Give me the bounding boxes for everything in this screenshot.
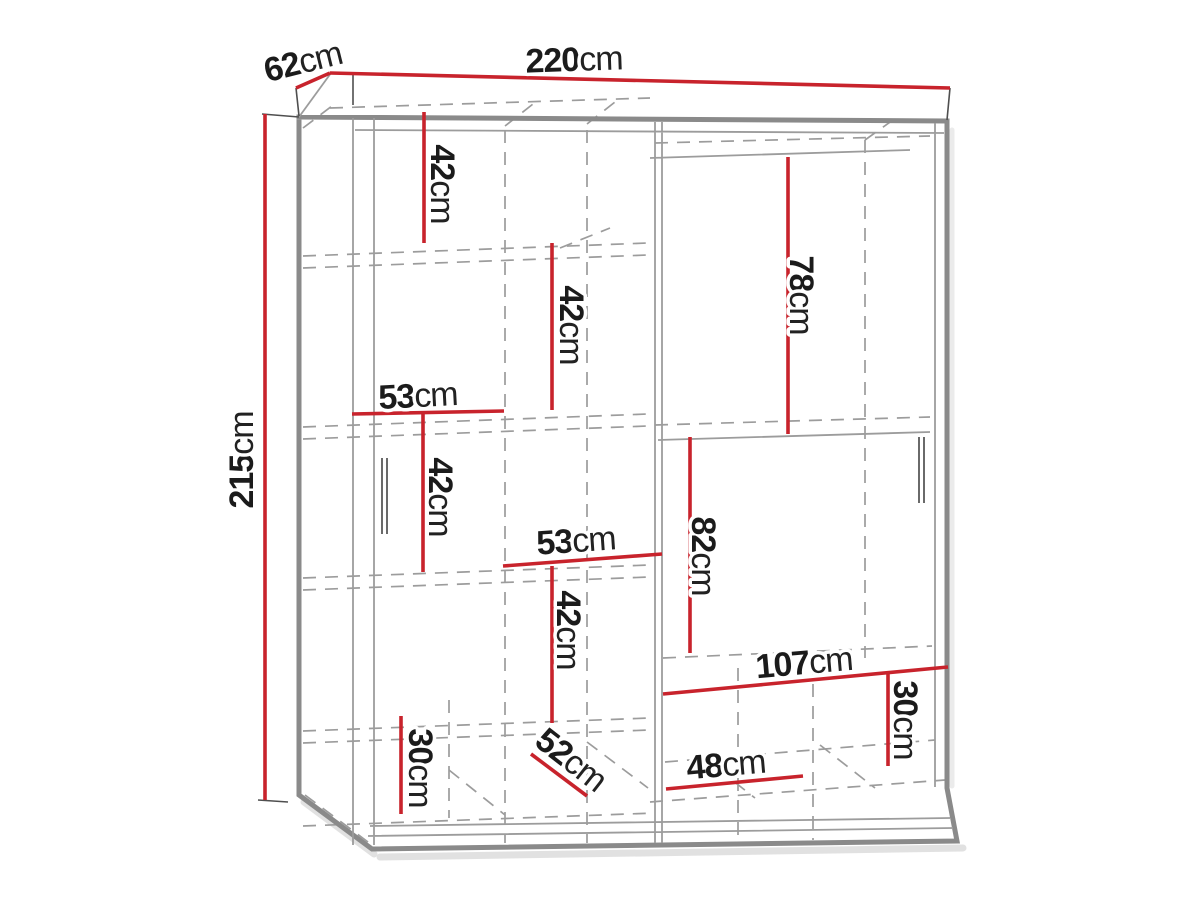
dimension-label-42-third: 42cm bbox=[421, 457, 459, 536]
extension-ticks bbox=[258, 72, 950, 802]
dimension-value: 53 bbox=[535, 522, 573, 562]
dimension-unit: cm bbox=[579, 39, 624, 78]
dimension-label-30-left: 30cm bbox=[401, 728, 439, 807]
dimension-label-107: 107cm bbox=[754, 640, 854, 686]
dimension-label-30-right: 30cm bbox=[886, 680, 924, 759]
dimension-label-53-lower: 53cm bbox=[535, 519, 617, 562]
dimension-unit: cm bbox=[413, 375, 458, 415]
dimension-value: 42 bbox=[421, 457, 459, 493]
dimension-value: 42 bbox=[549, 590, 587, 626]
dimension-value: 30 bbox=[401, 728, 439, 764]
dimension-value: 42 bbox=[552, 285, 590, 321]
dimension-unit: cm bbox=[421, 493, 459, 536]
dimension-value: 53 bbox=[377, 377, 415, 417]
dimension-unit: cm bbox=[721, 743, 767, 785]
dimension-label-height-215: 215cm bbox=[223, 411, 261, 508]
dimension-line-width-220 bbox=[330, 73, 950, 88]
dimension-label-width-220: 220cm bbox=[525, 39, 623, 80]
left-door-handle bbox=[382, 458, 387, 534]
dimension-unit: cm bbox=[886, 716, 924, 759]
dimension-label-53-upper: 53cm bbox=[377, 375, 458, 417]
dimension-unit: cm bbox=[552, 321, 590, 364]
dimension-value: 107 bbox=[754, 644, 811, 687]
dimension-label-78: 78cm bbox=[782, 255, 820, 334]
dimension-lines bbox=[265, 73, 950, 814]
dimension-label-42-top: 42cm bbox=[423, 144, 461, 223]
wardrobe-dimension-diagram: 220cm 62cm 215cm 42cm 42cm 53cm 42cm 53c… bbox=[0, 0, 1200, 900]
dimension-label-42-second: 42cm bbox=[552, 285, 590, 364]
dimension-ticks bbox=[258, 72, 950, 802]
dimension-unit: cm bbox=[549, 626, 587, 669]
right-door-handle bbox=[919, 437, 924, 503]
dimension-value: 82 bbox=[684, 516, 722, 552]
shadow-bottom-left bbox=[304, 802, 374, 854]
dimension-value: 48 bbox=[685, 746, 724, 787]
dimension-value: 220 bbox=[525, 41, 580, 81]
dimension-label-48: 48cm bbox=[685, 743, 767, 788]
dimension-unit: cm bbox=[423, 180, 461, 223]
dimension-unit: cm bbox=[684, 552, 722, 595]
dimension-unit: cm bbox=[808, 640, 854, 682]
dimension-value: 78 bbox=[782, 255, 820, 291]
diagram-canvas: 220cm 62cm 215cm 42cm 42cm 53cm 42cm 53c… bbox=[0, 0, 1200, 900]
dimension-value: 30 bbox=[886, 680, 924, 716]
dimension-value: 42 bbox=[423, 144, 461, 180]
dimension-unit: cm bbox=[401, 764, 439, 807]
dimension-label-82: 82cm bbox=[684, 516, 722, 595]
dashed-partition-lines bbox=[449, 130, 865, 845]
dimension-unit: cm bbox=[782, 291, 820, 334]
dimension-value: 215 bbox=[223, 455, 261, 509]
dimension-unit: cm bbox=[571, 519, 617, 560]
dimension-unit: cm bbox=[223, 411, 261, 454]
wardrobe-outline bbox=[299, 73, 957, 849]
dashed-depth-diagonals bbox=[303, 102, 893, 842]
dimension-label-depth-62: 62cm bbox=[260, 34, 346, 90]
dimension-label-42-fourth: 42cm bbox=[549, 590, 587, 669]
